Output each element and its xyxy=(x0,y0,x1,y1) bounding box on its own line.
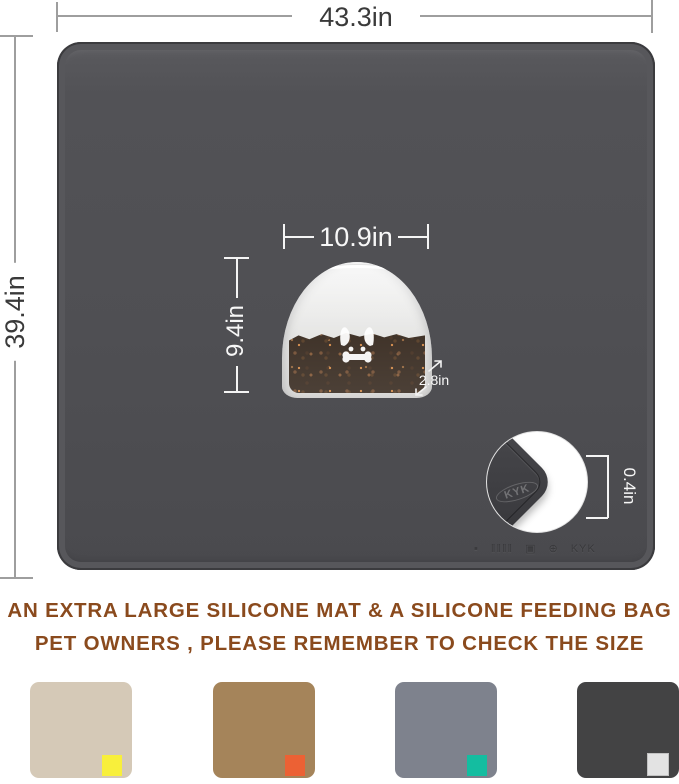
bag-height-bottom-tick xyxy=(224,391,249,393)
embossed-seal-mark: ⊕ xyxy=(549,542,559,556)
bag-height-top-tick xyxy=(224,257,249,259)
embossed-barcode-mark: ‖‖‖‖ xyxy=(491,542,513,556)
embossed-box-mark: ▣ xyxy=(525,542,536,556)
bag-height-label: 9.4in xyxy=(222,305,250,357)
bag-width-line-right xyxy=(398,236,428,238)
mat-corner-groove xyxy=(486,431,546,533)
mat-thickness-top-tick xyxy=(586,455,608,457)
bag-width-left-tick xyxy=(283,224,285,249)
mat-height-label: 39.4in xyxy=(0,263,32,361)
mat-width-label: 43.3in xyxy=(292,0,420,34)
embossed-marks-row: ▪ ‖‖‖‖ ▣ ⊕ KYK xyxy=(474,542,596,556)
bag-width-label: 10.9in xyxy=(314,222,398,252)
product-dimension-image: 43.3in 39.4in 10.9in 9.4in xyxy=(0,0,679,784)
color-swatch-beige xyxy=(30,682,132,778)
mat-thickness-line xyxy=(607,455,609,518)
swatch-chip-yellow xyxy=(102,755,122,776)
swatch-chip-teal xyxy=(467,755,487,776)
heading-line-2: PET OWNERS , PLEASE REMEMBER TO CHECK TH… xyxy=(0,627,679,660)
color-swatch-charcoal xyxy=(577,682,679,778)
swatch-chip-white xyxy=(647,753,669,776)
mat-height-top-tick xyxy=(0,35,33,37)
mat-width-left-tick xyxy=(56,2,58,32)
mat-height-bottom-tick xyxy=(0,577,33,579)
swatch-chip-orange xyxy=(285,755,305,776)
mat-width-right-tick xyxy=(651,0,653,33)
color-swatch-gray xyxy=(395,682,497,778)
embossed-dot-mark: ▪ xyxy=(474,542,479,556)
corner-zoom-inset: KYK xyxy=(486,431,588,533)
product-heading: AN EXTRA LARGE SILICONE MAT & A SILICONE… xyxy=(0,594,679,660)
color-swatch-brown xyxy=(213,682,315,778)
embossed-logo-mark: KYK xyxy=(571,542,596,556)
bag-width-right-tick xyxy=(427,224,429,249)
bag-height-line-top xyxy=(236,259,238,298)
heading-line-1: AN EXTRA LARGE SILICONE MAT & A SILICONE… xyxy=(0,594,679,627)
bag-depth-label: 2.8in xyxy=(413,372,455,388)
bag-height-line-bottom xyxy=(236,366,238,392)
mat-thickness-label: 0.4in xyxy=(619,468,639,505)
bag-width-line-left xyxy=(284,236,314,238)
mat-thickness-bottom-tick xyxy=(586,517,608,519)
